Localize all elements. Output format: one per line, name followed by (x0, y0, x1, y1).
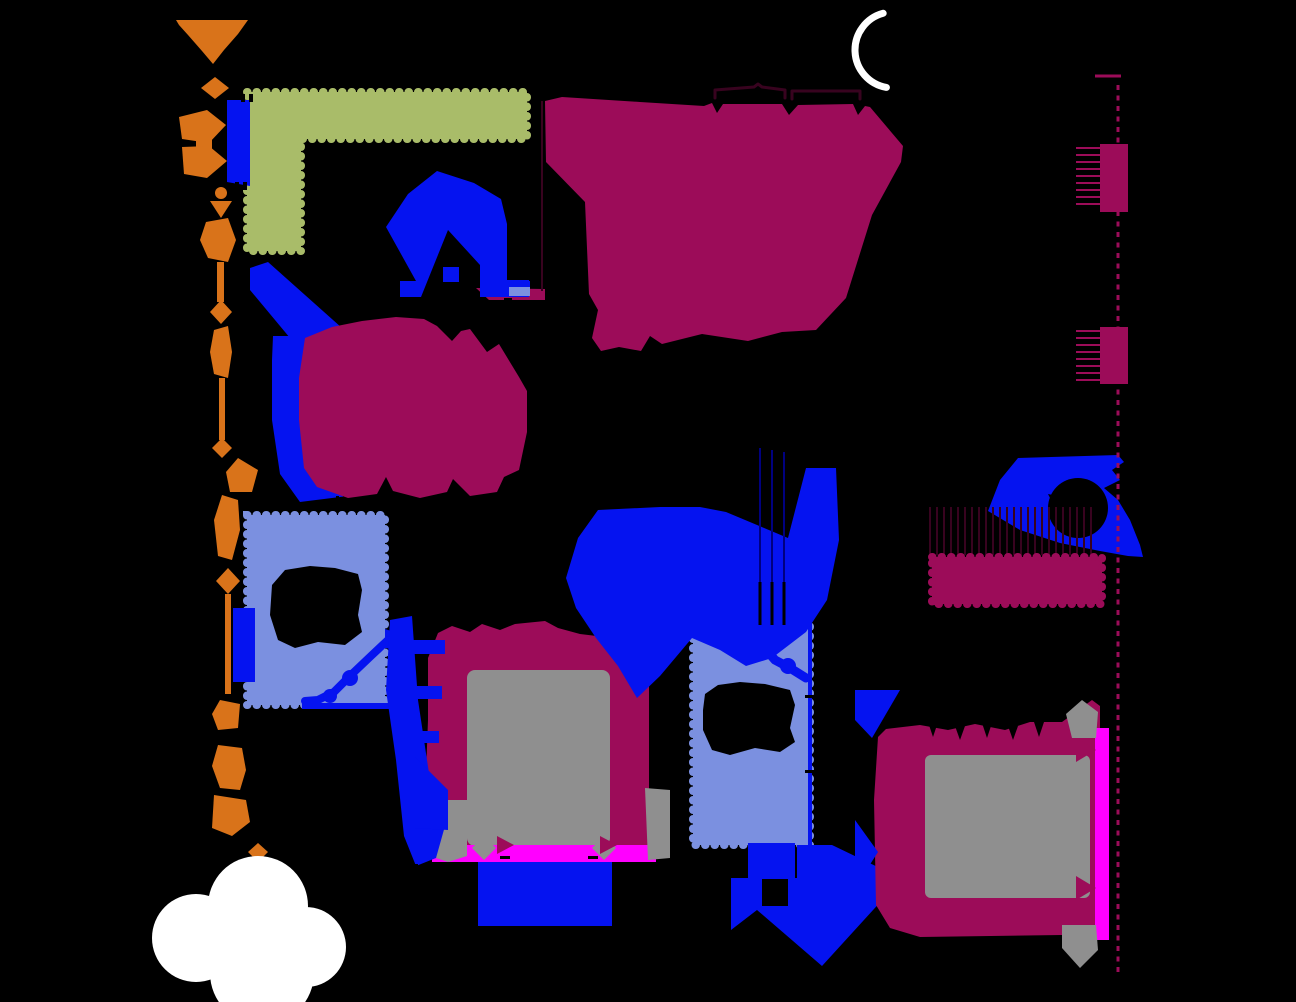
railway-dotted-line (1117, 820, 1120, 825)
railway-dotted-line (1117, 495, 1120, 500)
railway-dotted-line (1117, 673, 1120, 678)
railway-dotted-line (1117, 537, 1120, 542)
railway-dotted-line (1117, 243, 1120, 248)
gray-building-center (467, 670, 610, 846)
tick-vline-2 (805, 770, 815, 773)
railway-dotted-line (1117, 516, 1120, 521)
orange-hex-3 (212, 745, 246, 790)
railway-dotted-line (1117, 747, 1120, 752)
tick-pink-2 (588, 856, 598, 859)
railway-dotted-line (1117, 768, 1120, 773)
railway-dotted-line (1117, 295, 1120, 300)
blue-pool-ring-2 (780, 658, 796, 674)
railway-dotted-line (1117, 757, 1120, 762)
railway-dotted-line (1117, 442, 1120, 447)
railway-dotted-line (1117, 106, 1120, 111)
cornflower-square-hole (270, 566, 362, 648)
railway-dotted-line (1117, 463, 1120, 468)
blue-bar-below-ring (748, 843, 795, 879)
railway-dotted-line (1117, 505, 1120, 510)
railway-dotted-line (1117, 411, 1120, 416)
railway-dotted-line (1117, 894, 1120, 899)
cornflower-ring-hole (703, 682, 795, 755)
bracket-line-2 (792, 91, 860, 99)
railway-dotted-line (1117, 873, 1120, 878)
railway-dotted-line (1117, 589, 1120, 594)
railway-dotted-line (1117, 610, 1120, 615)
railway-dotted-line (1117, 915, 1120, 920)
pink-band-se (1095, 728, 1109, 940)
railway-dotted-line (1117, 421, 1120, 426)
railway-dotted-line (1117, 579, 1120, 584)
orange-bar-3 (225, 594, 231, 694)
railway-dotted-line (1117, 631, 1120, 636)
chevron-topblob (545, 212, 553, 224)
tick-road-2 (422, 866, 426, 874)
railway-dotted-line (1117, 925, 1120, 930)
railway-dotted-line (1117, 127, 1120, 132)
blue-band-topleft (227, 100, 250, 186)
railway-dotted-line (1117, 274, 1120, 279)
railway-dotted-line (1117, 831, 1120, 836)
railway-dotted-line (1117, 883, 1120, 888)
railway-dotted-line (1117, 684, 1120, 689)
orange-diamond-3 (212, 438, 232, 458)
railway-dotted-line (1117, 453, 1120, 458)
railway-dotted-line (1117, 936, 1120, 941)
railway-dotted-line (1117, 526, 1120, 531)
orange-bar-1 (217, 262, 224, 302)
gray-foot-right (645, 788, 670, 860)
blue-rung-2 (412, 686, 442, 699)
railway-dotted-line (1117, 474, 1120, 479)
railway-dotted-line (1117, 726, 1120, 731)
railway-dotted-line (1117, 736, 1120, 741)
blue-band-left-sq (233, 608, 255, 682)
tick-vline-1 (805, 695, 815, 698)
railway-dotted-line (1117, 852, 1120, 857)
railway-dotted-line (1117, 558, 1120, 563)
blue-rung-3 (412, 731, 439, 743)
railway-dotted-line (1117, 264, 1120, 269)
tick-col-2 (343, 496, 346, 504)
orange-diamond-4 (216, 568, 240, 594)
railway-dotted-line (1117, 799, 1120, 804)
tick-col-1 (336, 496, 339, 504)
orange-pentagon-5 (212, 795, 250, 836)
railway-dotted-line (1117, 253, 1120, 258)
railway-dotted-line (1117, 946, 1120, 951)
railway-dotted-line (1117, 285, 1120, 290)
tick-v-3 (824, 968, 827, 976)
railway-dotted-line (1117, 96, 1120, 101)
railway-dotted-line (1117, 642, 1120, 647)
railway-dotted-line (1117, 432, 1120, 437)
cornflower-chip (509, 287, 530, 296)
magenta-top-blob (545, 97, 903, 351)
railway-dotted-line (1117, 904, 1120, 909)
blue-foot-sq1 (443, 267, 459, 282)
tick-road-3 (430, 864, 434, 872)
magenta-band (932, 557, 1102, 604)
orange-bar-2 (219, 378, 225, 440)
railway-dotted-line (1117, 568, 1120, 573)
blue-river-pool-1 (342, 670, 358, 686)
railway-dotted-line (1117, 715, 1120, 720)
railway-dotted-line (1117, 222, 1120, 227)
railway-dotted-line (1117, 138, 1120, 143)
orange-hex-1 (200, 218, 236, 262)
orange-triangle (210, 201, 232, 218)
gray-building-se (925, 755, 1090, 898)
blue-rect-below-center (478, 862, 612, 926)
tick-road-1 (414, 864, 418, 872)
tick-v-2 (818, 970, 821, 978)
railway-dotted-line (1117, 117, 1120, 122)
white-arc-symbol (855, 13, 886, 87)
railway-dotted-line (1117, 390, 1120, 395)
cloud-circle-4 (266, 907, 346, 987)
tick-v-1 (812, 968, 815, 976)
tick-arch-right (504, 298, 512, 302)
orange-fan-top (176, 20, 248, 64)
railway-dotted-line (1117, 400, 1120, 405)
railway-dotted-line (1117, 232, 1120, 237)
tick-row-band-top2 (249, 94, 253, 102)
railway-dotted-line (1117, 547, 1120, 552)
map-feature-layer (0, 0, 1296, 1002)
orange-pentagon-4 (212, 700, 240, 730)
orange-dot (215, 187, 227, 199)
railway-dotted-line (1117, 789, 1120, 794)
railway-dotted-line (1117, 316, 1120, 321)
railway-dotted-line (1117, 841, 1120, 846)
orange-diamond-1 (201, 77, 229, 99)
railway-block-1 (1100, 144, 1128, 212)
railway-dotted-line (1117, 810, 1120, 815)
blue-river-pool-2 (323, 689, 337, 703)
orange-diamond-2 (210, 300, 232, 324)
orange-pentagon-2 (182, 146, 227, 178)
railway-dotted-line (1117, 652, 1120, 657)
railway-dotted-line (1117, 967, 1120, 972)
map-canvas (0, 0, 1296, 1002)
railway-dotted-line (1117, 600, 1120, 605)
tick-arch-left (404, 298, 412, 302)
railway-dotted-line (1117, 778, 1120, 783)
tick-pink-1 (500, 856, 510, 859)
railway-dotted-line (1117, 663, 1120, 668)
railway-dotted-line (1117, 705, 1120, 710)
orange-column-1 (210, 326, 232, 378)
gray-pent-bottom-se (1062, 925, 1098, 968)
railway-dotted-line (1117, 85, 1120, 90)
orange-hex-2 (214, 495, 240, 560)
tick-row-band-bot (235, 182, 239, 190)
magenta-three-lobe (299, 317, 527, 498)
railway-block-2 (1100, 327, 1128, 384)
bracket-line-1 (715, 84, 785, 98)
railway-dotted-line (1117, 306, 1120, 311)
tick-row-band-top (241, 94, 245, 102)
railway-dotted-line (1117, 862, 1120, 867)
railway-dotted-line (1117, 694, 1120, 699)
tick-row-band-bot2 (243, 182, 247, 190)
blue-v-arrow (731, 878, 884, 966)
orange-pentagon-3 (226, 458, 258, 492)
railway-dotted-line (1117, 621, 1120, 626)
blue-rung-1 (412, 640, 445, 654)
railway-dotted-line (1117, 484, 1120, 489)
railway-dotted-line (1117, 957, 1120, 962)
